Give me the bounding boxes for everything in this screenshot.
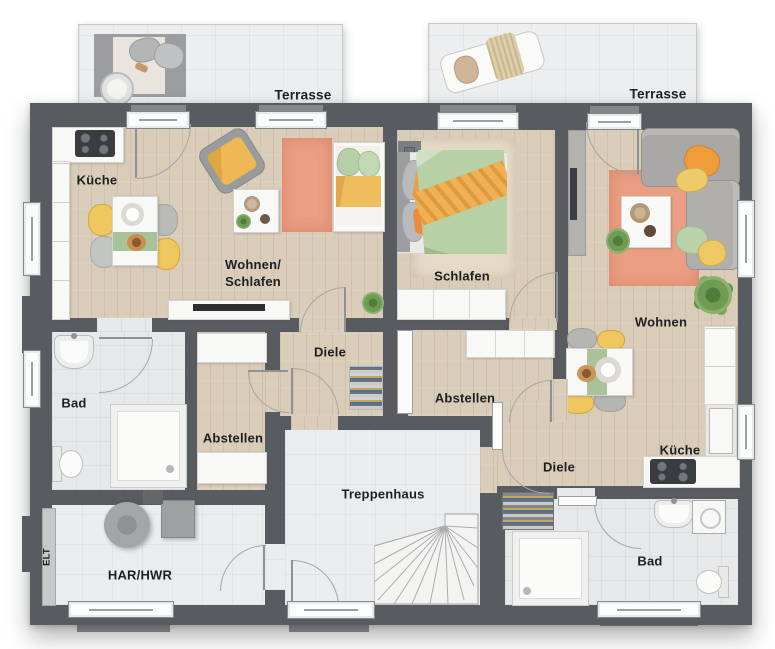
toilet-right — [696, 566, 728, 596]
door-opening — [291, 416, 338, 430]
cabinet-storage-left-top — [197, 333, 267, 363]
shower-right — [512, 531, 589, 606]
label-hall-left: Diele — [314, 345, 346, 360]
label-hall-right: Diele — [543, 460, 575, 475]
door-leaf — [135, 124, 137, 178]
toilet-left — [52, 444, 82, 482]
open-door-storage — [397, 330, 413, 414]
wardrobe-storage-middle — [466, 330, 555, 358]
bed-left — [333, 142, 385, 232]
door-leaf — [291, 560, 293, 606]
terrace-door-right-1 — [437, 112, 519, 130]
dining-chair-gray — [567, 328, 597, 350]
boiler — [104, 502, 150, 548]
plant-decor — [606, 228, 630, 254]
cooktop-right — [650, 459, 696, 484]
door-leaf — [99, 337, 152, 339]
side-table-left — [233, 189, 279, 233]
kitchen-counter-right — [705, 404, 737, 458]
shoe-rack-left — [349, 366, 383, 410]
kitchen-counter-side — [52, 161, 70, 320]
terrace-door-left-1 — [126, 111, 190, 129]
door-leaf — [344, 287, 346, 332]
cabinet-storage-left-bottom — [197, 452, 267, 484]
sun-lounger — [433, 18, 553, 104]
label-storage-middle: Abstellen — [435, 391, 495, 406]
cooktop-left — [75, 130, 115, 157]
floor-plan: Terrasse Terrasse Küche Wohnen/ Schlafen… — [0, 0, 775, 649]
door-opening — [97, 318, 152, 332]
label-stairwell: Treppenhaus — [341, 487, 424, 502]
label-bath-left: Bad — [61, 396, 86, 411]
door-leaf — [550, 380, 552, 422]
label-terrace-left: Terrasse — [275, 88, 332, 103]
window-bath-right — [597, 601, 701, 618]
window-kitchen-right — [737, 404, 755, 460]
label-bedroom-middle: Schlafen — [434, 269, 490, 284]
wall-pilaster — [22, 296, 30, 353]
kitchen-tall-cabinet-right — [704, 326, 736, 405]
terrace-side-table — [100, 72, 134, 106]
window-bath-left — [23, 350, 41, 408]
label-living-right: Wohnen — [635, 315, 687, 330]
tv — [193, 304, 265, 311]
bed-middle — [397, 150, 507, 254]
terrace-door-left-2 — [255, 111, 327, 129]
label-living-sleeping: Wohnen/ Schlafen — [225, 256, 281, 290]
plant-corner-left — [362, 292, 384, 314]
label-kitchen-right: Küche — [660, 443, 701, 458]
window-utility — [68, 601, 174, 618]
utility-unit — [161, 500, 195, 538]
shower-drain — [523, 587, 531, 595]
utility-duct — [143, 490, 163, 504]
shower-drain — [166, 465, 174, 473]
cup — [260, 214, 270, 224]
door-leaf — [558, 496, 597, 506]
label-bath-right: Bad — [637, 554, 662, 569]
door-opening — [553, 379, 568, 422]
dining-table-left — [112, 196, 158, 266]
entrance-door — [287, 601, 375, 619]
rug-left — [282, 138, 332, 232]
terrace-door-right-2 — [587, 113, 642, 130]
decor-bowl — [577, 365, 596, 382]
candles — [644, 225, 656, 237]
palm-plant — [694, 276, 732, 314]
label-terrace-right: Terrasse — [630, 87, 687, 102]
window-kitchen-left — [23, 202, 41, 276]
door-leaf — [291, 368, 293, 414]
sink-right — [654, 500, 694, 528]
label-living-sleeping-line1: Wohnen/ — [225, 256, 281, 273]
bed-sheet — [336, 207, 381, 226]
label-utility: HAR/HWR — [108, 568, 172, 583]
decor-bowl — [127, 234, 146, 251]
monitor — [570, 168, 577, 220]
flower-bouquet — [121, 203, 144, 226]
label-electrical: ELT — [42, 548, 53, 566]
flower-bouquet — [595, 357, 621, 383]
door-opening — [480, 447, 497, 493]
decor-tray — [630, 203, 650, 223]
shoe-rack-right — [502, 492, 554, 530]
sink-left — [54, 335, 94, 369]
washing-machine-right — [692, 500, 726, 534]
staircase — [374, 512, 480, 605]
label-kitchen-left: Küche — [77, 173, 118, 188]
blanket-yellow — [336, 176, 381, 208]
dining-chair-yellow — [597, 330, 625, 350]
shower-left — [110, 404, 187, 488]
dining-table-right — [566, 348, 633, 396]
door-leaf — [556, 272, 558, 322]
label-storage-left: Abstellen — [203, 431, 263, 446]
wardrobe-bedroom — [397, 289, 506, 320]
label-living-sleeping-line2: Schlafen — [225, 273, 281, 290]
door-leaf — [492, 402, 503, 450]
door-opening — [265, 544, 285, 590]
door-leaf — [248, 370, 288, 372]
cup — [244, 196, 260, 212]
door-leaf — [263, 545, 265, 590]
wall-pilaster — [22, 516, 30, 572]
armchair-throw — [206, 135, 259, 187]
plant-sprig — [236, 214, 251, 229]
window-living-right — [737, 200, 755, 278]
